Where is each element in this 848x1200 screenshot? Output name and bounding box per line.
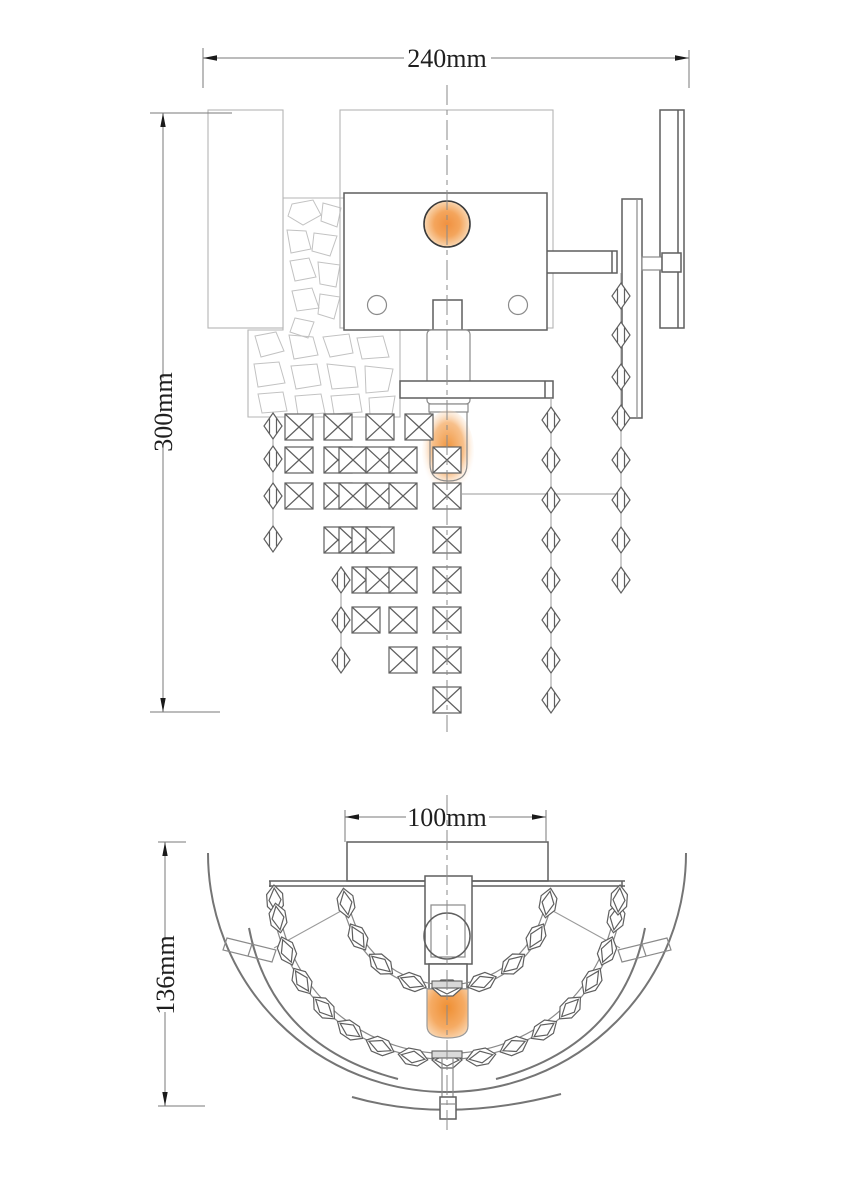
diamond-crystal xyxy=(612,487,630,513)
wall-mount-plate xyxy=(660,110,684,328)
diamond-crystal xyxy=(542,527,560,553)
dim-top-depth: 136mm xyxy=(151,842,205,1106)
square-crystal xyxy=(339,447,367,473)
garland-bead xyxy=(287,964,317,998)
square-crystal xyxy=(339,483,367,509)
diamond-crystal xyxy=(612,567,630,593)
socket-top-view xyxy=(424,876,472,989)
square-crystal xyxy=(389,607,417,633)
garland-bead xyxy=(527,1015,561,1045)
garland-bead xyxy=(363,1033,397,1059)
crystal-squares-group xyxy=(285,414,461,713)
diamond-crystal xyxy=(264,446,282,472)
sconce-drawing-svg: 240mm 300mm xyxy=(0,0,848,1200)
square-crystal xyxy=(285,483,313,509)
diamond-crystal xyxy=(542,487,560,513)
top-plan-view: 100mm 136mm xyxy=(151,795,686,1130)
diamond-crystal xyxy=(612,447,630,473)
garland-bead xyxy=(538,887,559,919)
square-crystal xyxy=(405,414,433,440)
dim-front-width: 240mm xyxy=(203,44,689,88)
garland-bead xyxy=(577,964,607,998)
diamond-crystal xyxy=(332,647,350,673)
garland-bead xyxy=(397,1046,430,1067)
dim-top-width: 100mm xyxy=(345,803,546,842)
garland-bead xyxy=(522,920,551,954)
diamond-crystal xyxy=(542,567,560,593)
diamond-crystal xyxy=(542,687,560,713)
diamond-crystal xyxy=(542,407,560,433)
square-crystal xyxy=(285,447,313,473)
garland-bead xyxy=(465,1046,498,1067)
garland-bead xyxy=(344,920,373,954)
dim-front-height-label: 300mm xyxy=(149,372,178,451)
square-crystal xyxy=(366,527,394,553)
diamond-crystal xyxy=(264,483,282,509)
garland-bead xyxy=(497,1033,531,1059)
left-shade-panel xyxy=(208,110,283,328)
dim-top-width-label: 100mm xyxy=(407,803,486,832)
dim-front-width-label: 240mm xyxy=(407,44,486,73)
diamond-crystal xyxy=(332,607,350,633)
square-crystal xyxy=(389,647,417,673)
square-crystal xyxy=(389,483,417,509)
diamond-crystal xyxy=(542,447,560,473)
dim-top-depth-label: 136mm xyxy=(151,935,180,1014)
diamond-crystal xyxy=(612,527,630,553)
diamond-crystal xyxy=(264,526,282,552)
lower-support-bar xyxy=(400,381,553,398)
garland-bead xyxy=(336,887,357,919)
square-crystal xyxy=(366,414,394,440)
garland-bead xyxy=(333,1015,367,1045)
diamond-crystal xyxy=(542,607,560,633)
technical-drawing-page: 240mm 300mm xyxy=(0,0,848,1200)
square-crystal xyxy=(352,607,380,633)
square-crystal xyxy=(285,414,313,440)
square-crystal xyxy=(324,414,352,440)
square-crystal xyxy=(389,447,417,473)
diamond-crystal xyxy=(332,567,350,593)
square-crystal xyxy=(389,567,417,593)
front-elevation-view: 240mm 300mm xyxy=(149,44,689,732)
diamond-crystal xyxy=(542,647,560,673)
